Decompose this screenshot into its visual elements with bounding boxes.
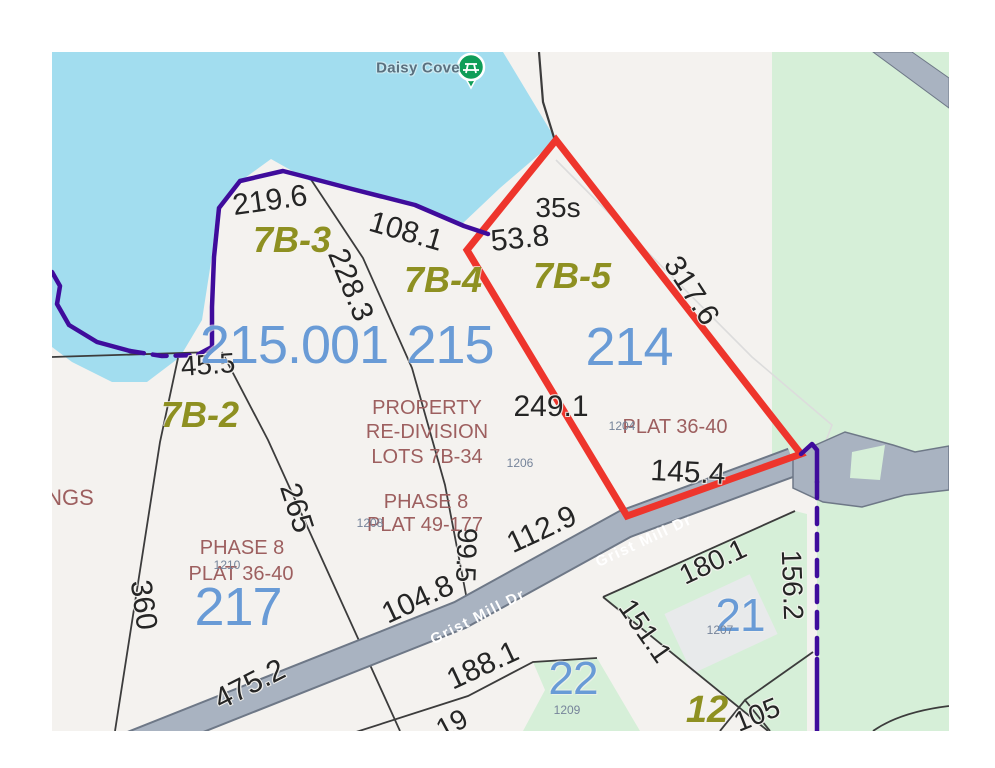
plat-map: Daisy Cove219.6108.1228.335s53.8317.645.… bbox=[52, 52, 949, 731]
label-parcel-215: 215 bbox=[406, 318, 493, 372]
label-addr-1204: 1204 bbox=[609, 420, 636, 432]
label-plat-49-177: PLAT 49-177 bbox=[367, 515, 483, 535]
label-lot-7b-5: 7B-5 bbox=[533, 258, 611, 294]
label-addr-1210: 1210 bbox=[214, 559, 241, 571]
label-dim-112-9: 112.9 bbox=[503, 501, 582, 559]
label-dim-180-1: 180.1 bbox=[675, 535, 750, 590]
label-addr-1209: 1209 bbox=[554, 704, 581, 716]
label-dim-19-clipped: 19 bbox=[432, 704, 473, 731]
label-dim-360: 360 bbox=[125, 578, 162, 632]
screenshot-canvas: Daisy Cove219.6108.1228.335s53.8317.645.… bbox=[0, 0, 995, 768]
label-addr-1207: 1207 bbox=[707, 624, 734, 636]
label-lot-7b-4: 7B-4 bbox=[404, 262, 482, 298]
label-plat-phase-8-217: PHASE 8 bbox=[200, 538, 284, 558]
label-dim-53-8: 53.8 bbox=[489, 221, 550, 257]
label-dim-249-1: 249.1 bbox=[513, 392, 588, 422]
label-plat-phase-8-215: PHASE 8 bbox=[384, 492, 468, 512]
label-plat-property: PROPERTY bbox=[372, 398, 482, 418]
label-parcel-214: 214 bbox=[585, 320, 672, 374]
label-dim-156-2: 156.2 bbox=[777, 549, 807, 620]
label-dim-35s: 35s bbox=[535, 194, 580, 222]
label-parcel-22: 22 bbox=[548, 655, 597, 701]
label-lot-7b-3: 7B-3 bbox=[253, 222, 331, 258]
label-lot-12: 12 bbox=[686, 691, 728, 729]
label-plat-36-40-217: PLAT 36-40 bbox=[189, 564, 294, 584]
label-plat-re-division: RE-DIVISION bbox=[366, 422, 488, 442]
label-dim-145-4: 145.4 bbox=[650, 456, 727, 490]
label-addr-1208: 1208 bbox=[357, 517, 384, 529]
map-labels-layer: Daisy Cove219.6108.1228.335s53.8317.645.… bbox=[52, 52, 949, 731]
label-parcel-217: 217 bbox=[194, 580, 281, 634]
label-dim-105: 105 bbox=[730, 693, 784, 731]
label-plat-lots-7b-34: LOTS 7B-34 bbox=[371, 447, 482, 467]
label-dim-151-1: 151.1 bbox=[613, 594, 676, 667]
label-dim-104-8: 104.8 bbox=[378, 571, 459, 630]
label-dim-108-1: 108.1 bbox=[366, 207, 446, 257]
label-plat-ngs: NGS bbox=[52, 487, 94, 509]
label-lot-7b-2: 7B-2 bbox=[161, 397, 239, 433]
label-dim-475-2: 475.2 bbox=[210, 655, 291, 716]
label-poi-daisy-cove: Daisy Cove bbox=[376, 61, 460, 76]
label-parcel-215-001: 215.001 bbox=[200, 318, 388, 372]
label-dim-219-6: 219.6 bbox=[231, 181, 310, 221]
label-dim-265: 265 bbox=[274, 480, 318, 537]
label-plat-36-40-214: PLAT 36-40 bbox=[623, 417, 728, 437]
label-dim-188-1: 188.1 bbox=[443, 637, 524, 696]
label-addr-1206: 1206 bbox=[507, 457, 534, 469]
